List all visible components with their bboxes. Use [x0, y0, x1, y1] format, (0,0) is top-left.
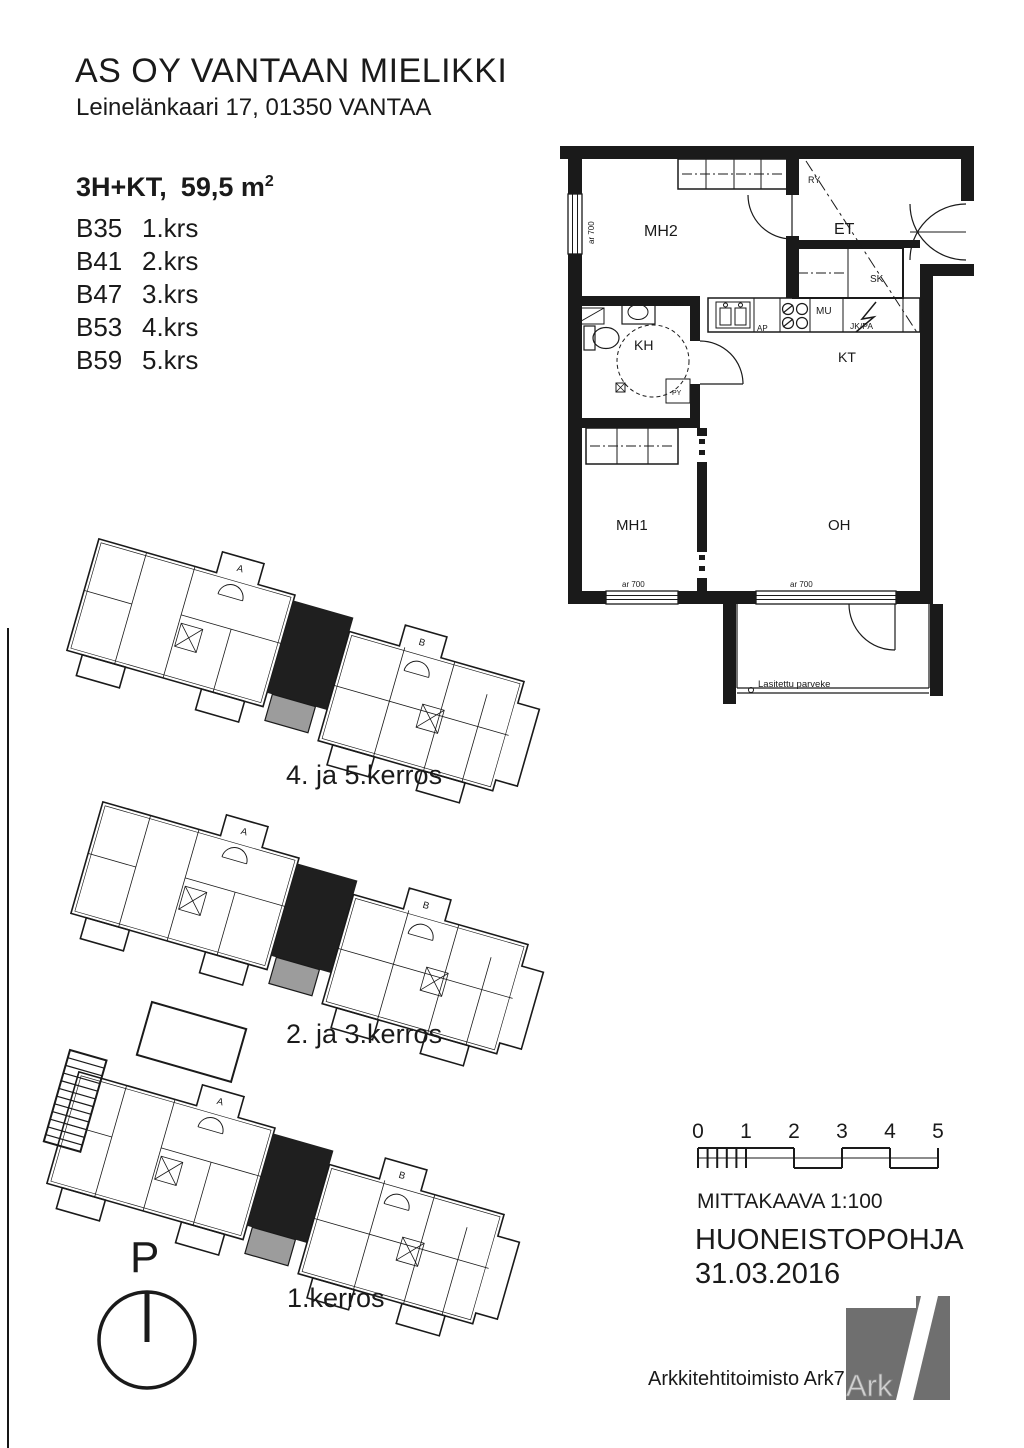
label-jkpa: JK/PA: [850, 321, 873, 331]
apartment-type-area: 3H+KT,59,5 m2: [76, 172, 274, 203]
label-py: PY: [672, 390, 682, 397]
room-label-kt: KT: [838, 349, 856, 365]
kitchen-sink: [716, 302, 750, 328]
turning-circle: [617, 325, 689, 397]
unit-id: B41: [76, 245, 142, 278]
room-label-et: ET: [834, 221, 855, 238]
unit-floor: 2.krs: [142, 245, 198, 278]
label-mu: MU: [816, 306, 832, 317]
unit-row: B534.krs: [76, 311, 198, 344]
unit-floor: 1.krs: [142, 212, 198, 245]
unit-floor: 3.krs: [142, 278, 198, 311]
label-sk: SK: [870, 274, 884, 285]
unit-floor: 4.krs: [142, 311, 198, 344]
north-compass: P: [83, 1228, 213, 1408]
scale-bar: 0 1 2 3 4 5: [686, 1118, 966, 1188]
tick-2: 2: [788, 1120, 800, 1143]
project-address: Leinelänkaari 17, 01350 VANTAA: [76, 94, 431, 122]
room-label-kh: KH: [634, 337, 653, 353]
unit-id: B59: [76, 344, 142, 377]
unit-row: B473.krs: [76, 278, 198, 311]
apartment-area-sup: 2: [265, 173, 274, 190]
stove-burners: [783, 304, 808, 329]
north-label: P: [130, 1233, 159, 1282]
apartment-type: 3H+KT,: [76, 172, 167, 202]
tick-4: 4: [884, 1120, 896, 1143]
exterior-stairs: [44, 1050, 107, 1152]
caption-floor-1: 1.kerros: [287, 1283, 385, 1314]
unit-row: B595.krs: [76, 344, 198, 377]
tick-0: 0: [692, 1120, 704, 1143]
unit-row: B351.krs: [76, 212, 198, 245]
label-ap: AP: [757, 324, 768, 333]
project-title: AS OY VANTAAN MIELIKKI: [75, 52, 507, 91]
unit-id: B53: [76, 311, 142, 344]
ark7-logo: Ark: [846, 1296, 950, 1402]
document-type: HUONEISTOPOHJA: [695, 1224, 964, 1257]
scale-label: MITTAKAAVA 1:100: [697, 1190, 883, 1214]
caption-floor-2-3: 2. ja 3.kerros: [286, 1019, 442, 1050]
drawing-sheet: AS OY VANTAAN MIELIKKI Leinelänkaari 17,…: [0, 0, 1024, 1448]
label-ppkkr: PPK/KR: [665, 301, 689, 308]
apartment-area: 59,5 m: [181, 172, 265, 202]
tick-3: 3: [836, 1120, 848, 1143]
unit-floor: 5.krs: [142, 344, 198, 377]
unit-row: B412.krs: [76, 245, 198, 278]
unit-id: B47: [76, 278, 142, 311]
scale-ticks: 0 1 2 3 4 5: [692, 1120, 944, 1143]
document-date: 31.03.2016: [695, 1258, 840, 1291]
tick-1: 1: [740, 1120, 752, 1143]
storage-building: [137, 1002, 246, 1082]
caption-floor-4-5: 4. ja 5.kerros: [286, 760, 442, 791]
unit-list: B351.krs B412.krs B473.krs B534.krs B595…: [76, 212, 198, 377]
unit-id: B35: [76, 212, 142, 245]
logo-text: Ark: [846, 1368, 893, 1402]
architect-firm: Arkkitehtitoimisto Ark7 Oy: [648, 1368, 876, 1391]
label-ry: RY: [808, 175, 820, 185]
room-label-mh2: MH2: [644, 223, 678, 240]
label-ar700-left: ar 700: [587, 221, 596, 244]
tick-5: 5: [932, 1120, 944, 1143]
